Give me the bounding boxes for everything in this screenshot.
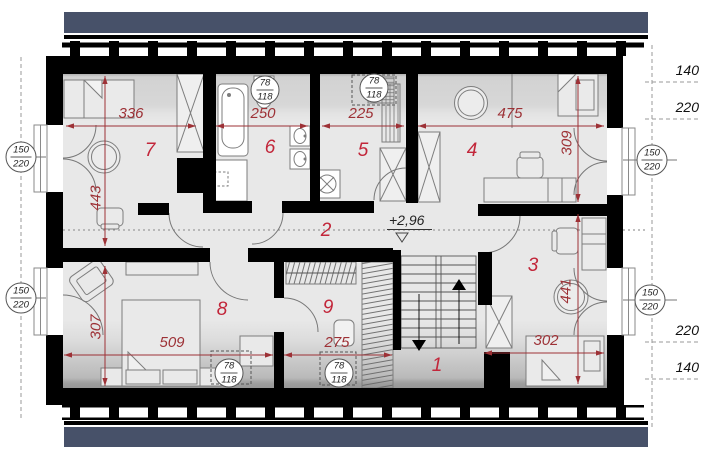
roof-band-top [64, 12, 648, 39]
roof-band-bottom [64, 421, 648, 447]
floor-plan: +2,96 7654289131402202201401502201502201… [0, 0, 702, 466]
eaves-strip-top [62, 41, 644, 56]
floor-plan-drawing [0, 0, 702, 466]
eaves-strip-bottom [62, 405, 644, 420]
